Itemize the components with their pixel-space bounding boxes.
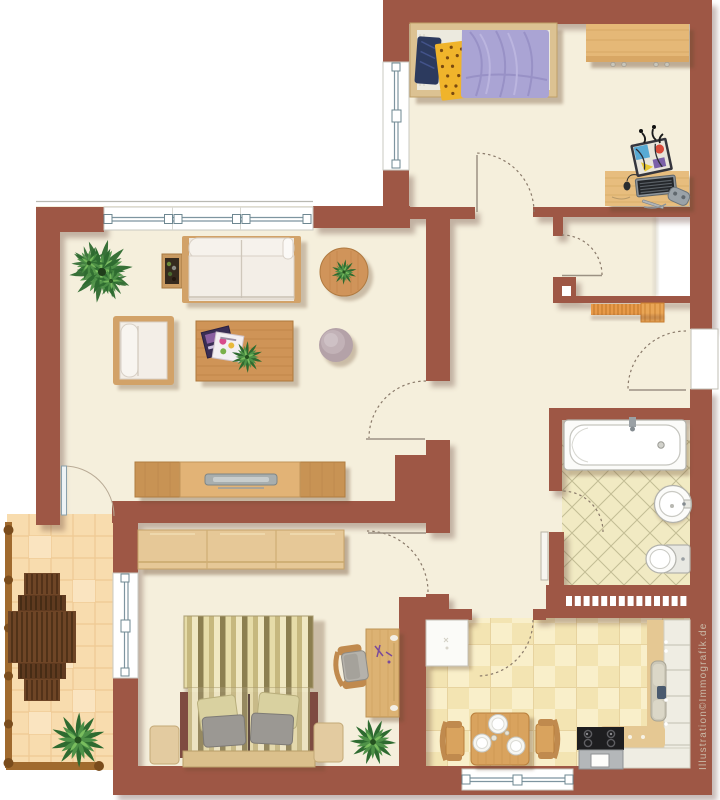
svg-text:Illustration©Immografik.de: Illustration©Immografik.de: [698, 623, 709, 771]
